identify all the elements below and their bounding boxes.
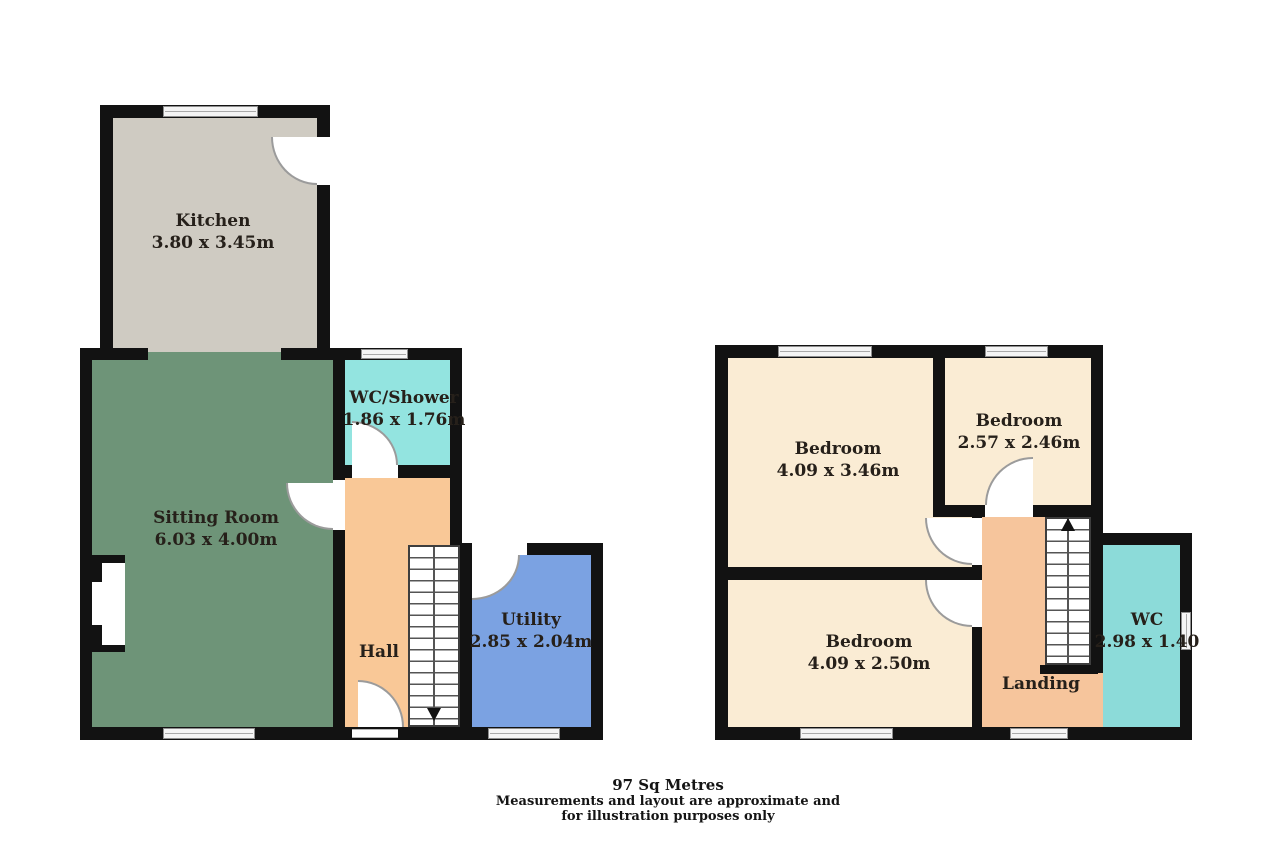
room-name: WC/Shower [343,387,466,409]
floorplan-canvas: Kitchen 3.80 x 3.45m Sitting Room 6.03 x… [0,0,1280,853]
room-dims: 1.86 x 1.76m [343,409,466,431]
bedroom1-window [778,346,872,357]
wall [591,543,603,740]
hall-label: Hall [359,641,399,663]
door-opening [472,543,527,555]
wall [450,348,462,555]
wall [715,567,982,580]
room-name: Bedroom [808,631,931,653]
room-name: Utility [470,609,593,631]
landing-window [1010,728,1068,739]
fireplace-recess [102,563,125,645]
wall [715,345,728,740]
footer-note: 97 Sq Metres Measurements and layout are… [368,776,968,824]
room-name: Landing [1002,673,1080,695]
hall-floor [345,478,450,545]
wc-shower-label: WC/Shower 1.86 x 1.76m [343,387,466,431]
wc-label: WC 2.98 x 1.40 [1095,609,1200,653]
bedroom3-window [800,728,893,739]
bedroom2-label: Bedroom 2.57 x 2.46m [958,410,1081,454]
room-name: WC [1095,609,1200,631]
front-door-threshold [352,729,398,738]
landing-floor [1091,673,1103,727]
room-dims: 4.09 x 3.46m [777,460,900,482]
bedroom1-label: Bedroom 4.09 x 3.46m [777,438,900,482]
fireplace-recess [92,582,102,625]
room-name: Hall [359,641,399,663]
wall [1103,727,1192,740]
room-dims: 4.09 x 2.50m [808,653,931,675]
door-opening [972,518,982,565]
wall [80,348,92,740]
disclaimer-line1: Measurements and layout are approximate … [368,794,968,809]
wall [100,105,113,352]
room-name: Sitting Room [153,507,279,529]
stairs-down-arrow-icon [427,708,441,721]
room-dims: 2.98 x 1.40 [1095,631,1200,653]
wall [933,358,945,505]
door-opening [985,505,1033,517]
sitting-room-window [163,728,255,739]
room-name: Bedroom [777,438,900,460]
room-name: Kitchen [152,210,275,232]
room-dims: 3.80 x 3.45m [152,232,275,254]
landing-label: Landing [1002,673,1080,695]
utility-window [488,728,560,739]
room-dims: 6.03 x 4.00m [153,529,279,551]
total-area-text: 97 Sq Metres [368,776,968,794]
stairs-up-arrow-icon [1061,518,1075,531]
door-opening [333,480,345,530]
kitchen-label: Kitchen 3.80 x 3.45m [152,210,275,254]
first-floor-stairs [1045,517,1091,665]
sitting-room-label: Sitting Room 6.03 x 4.00m [153,507,279,551]
kitchen-window [163,106,258,117]
wc-shower-window [361,349,408,359]
bedroom3-label: Bedroom 4.09 x 2.50m [808,631,931,675]
room-dims: 2.85 x 2.04m [470,631,593,653]
ground-floor-stairs [408,545,460,727]
door-opening [352,465,398,478]
door-opening [972,580,982,627]
disclaimer-line2: for illustration purposes only [368,809,968,824]
wall [1091,533,1192,545]
bedroom2-window [985,346,1048,357]
room-dims: 2.57 x 2.46m [958,432,1081,454]
door-opening [317,137,330,185]
utility-label: Utility 2.85 x 2.04m [470,609,593,653]
room-name: Bedroom [958,410,1081,432]
